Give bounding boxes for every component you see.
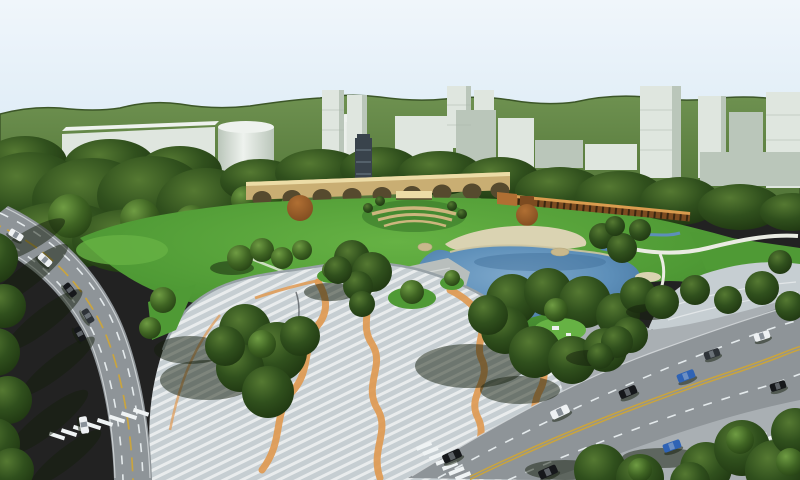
lawn-mound [76,235,168,265]
boulder [551,248,569,256]
car [76,414,90,436]
rust-tree [287,195,313,221]
boulder [418,243,432,251]
rust-tree [516,204,538,226]
pavilion [396,191,432,199]
rendering-canvas [0,0,800,480]
tower-cluster-right [640,86,800,188]
timber-pavilion [497,192,517,206]
park-rendering [0,0,800,480]
